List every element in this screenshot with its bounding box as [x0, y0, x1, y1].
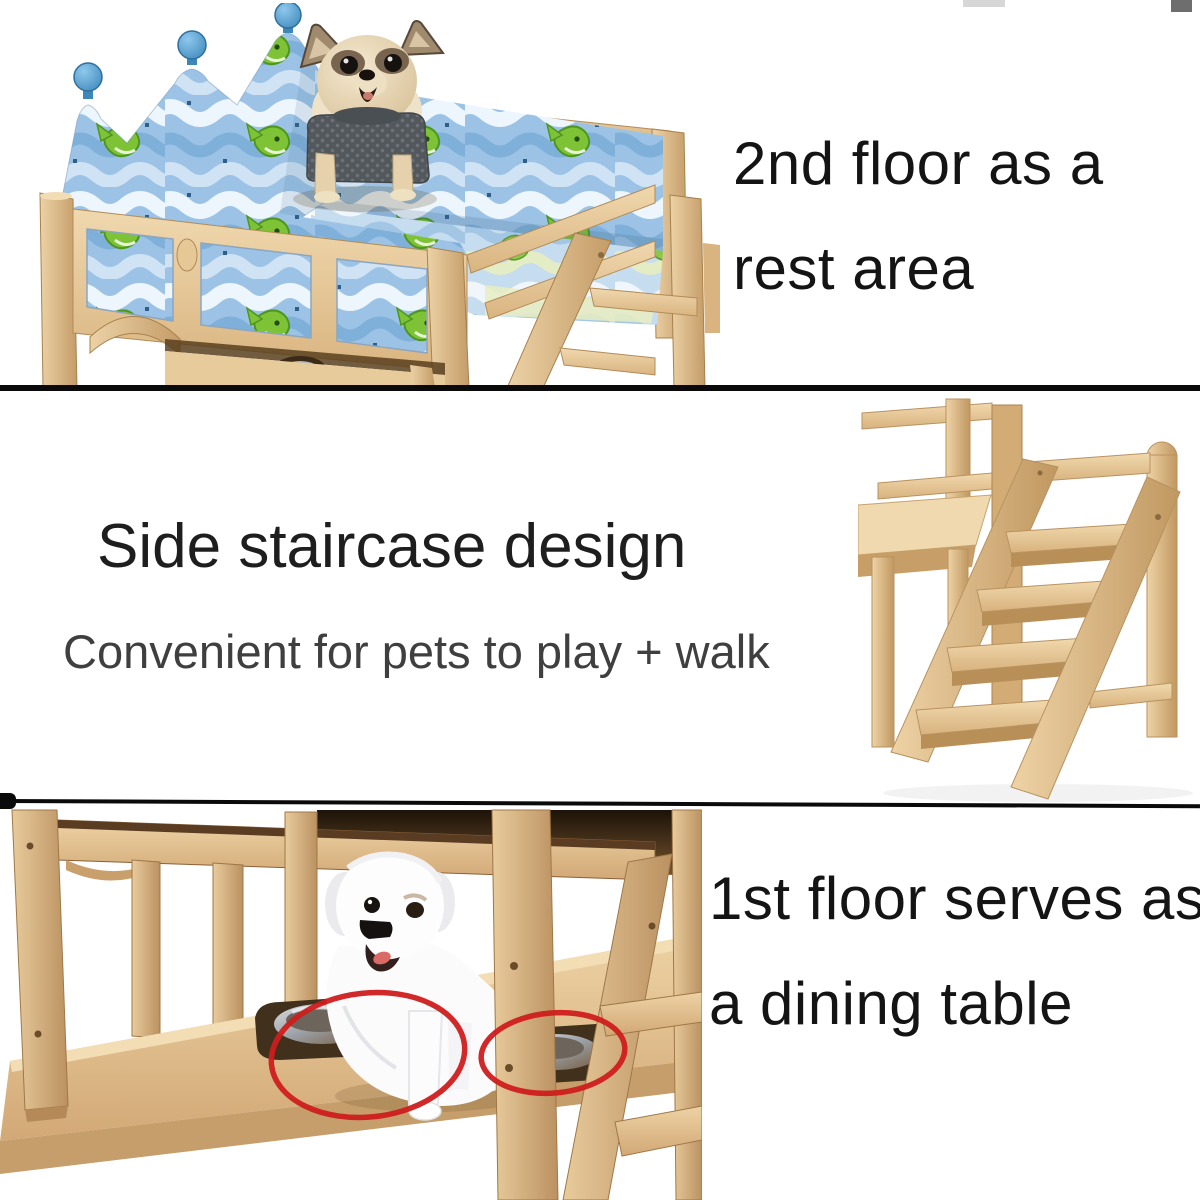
crown-finial-right — [275, 3, 301, 28]
crown-finial-left — [74, 63, 102, 91]
dog-nose — [360, 920, 393, 939]
staircase-photo-illustration — [858, 397, 1200, 805]
side-staircase — [891, 442, 1180, 799]
scan-artifact — [1171, 0, 1192, 12]
bed-photo-illustration — [15, 3, 720, 388]
dog-right-eye — [384, 54, 402, 72]
crown-finial-middle — [178, 31, 206, 59]
top-caption-line2: rest area — [733, 216, 1104, 321]
panel-fabric-window — [337, 259, 427, 353]
underbed-photo-illustration — [0, 806, 702, 1200]
panel-fabric-window — [87, 229, 173, 321]
panel-fabric-window — [201, 243, 311, 338]
middle-title: Side staircase design — [97, 516, 686, 578]
dog-left-eye — [364, 897, 380, 913]
section-divider-top — [0, 385, 1200, 391]
dog-right-eye — [406, 902, 424, 918]
bottom-caption-line1: 1st floor serves as — [709, 846, 1200, 951]
dog-left-eye — [340, 56, 358, 74]
top-caption: 2nd floor as a rest area — [733, 111, 1104, 321]
bottom-caption-line2: a dining table — [709, 951, 1200, 1056]
middle-subtitle: Convenient for pets to play + walk — [63, 628, 770, 675]
scan-artifact — [963, 0, 1005, 7]
bed-left-post — [40, 192, 77, 388]
pet-bed-product-infographic: 2nd floor as a rest area Side staircase … — [0, 0, 1200, 1200]
top-caption-line1: 2nd floor as a — [733, 111, 1104, 216]
dog-nose — [359, 70, 375, 81]
bottom-caption: 1st floor serves as a dining table — [709, 846, 1200, 1056]
tall-post — [492, 810, 558, 1200]
